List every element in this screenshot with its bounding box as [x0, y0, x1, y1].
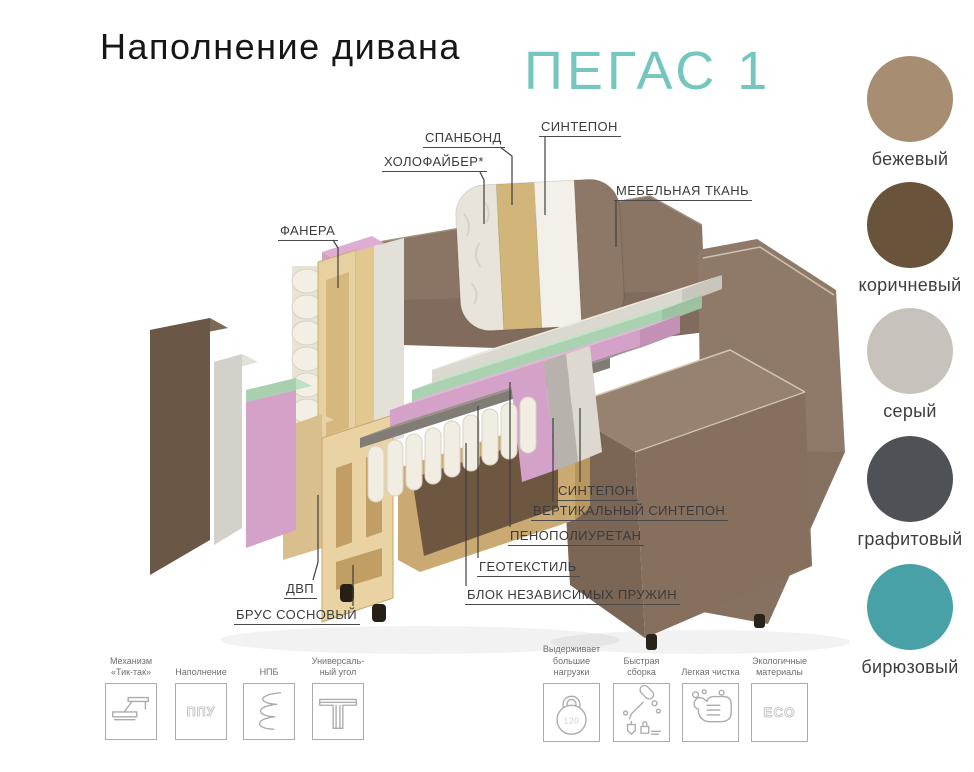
feature-box — [243, 683, 295, 740]
label-furniture-fabric: МЕБЕЛЬНАЯ ТКАНЬ — [614, 184, 752, 201]
easy-cleaning-icon — [683, 684, 738, 741]
quick-assembly-icon — [614, 684, 669, 741]
swatch-circle-graphite — [867, 436, 953, 522]
feature-box: ППУ — [175, 683, 227, 740]
spring-icon — [244, 684, 294, 739]
feature-box: ECO — [751, 683, 808, 742]
feature-quick-assembly: Быстрая сборка — [613, 683, 670, 742]
swatch-circle-turquoise — [867, 564, 953, 650]
pillow-sintepon-layer — [534, 180, 582, 328]
feature-box — [682, 683, 739, 742]
back-cushion-pillow — [454, 178, 625, 332]
fabric-swatch-beige: бежевый — [851, 56, 969, 170]
label-geotextile: ГЕОТЕКСТИЛЬ — [477, 560, 580, 577]
feature-caption: Универсаль- ный угол — [292, 656, 384, 679]
universal-corner-icon — [313, 684, 363, 739]
feature-eco-materials: Экологичные материалы ECO — [751, 683, 808, 742]
label-polyurethane: ПЕНОПОЛИУРЕТАН — [508, 529, 644, 546]
swatch-circle-beige — [867, 56, 953, 142]
eco-icon: ECO — [752, 684, 807, 741]
swatch-name: коричневый — [851, 275, 969, 296]
kettlebell-icon: 120 — [544, 684, 599, 741]
svg-text:ECO: ECO — [763, 705, 795, 720]
tik-tak-mechanism-icon — [106, 684, 156, 739]
label-sintepon-bottom: СИНТЕПОН — [556, 484, 638, 501]
ppu-filling-icon: ППУ — [176, 684, 226, 739]
feature-universal-corner: Универсаль- ный угол — [312, 683, 364, 740]
swatch-name: бежевый — [851, 149, 969, 170]
label-spunbond: СПАНБОНД — [423, 131, 505, 148]
swatch-name: бирюзовый — [851, 657, 969, 678]
label-vertical-sintepon: ВЕРТИКАЛЬНЫЙ СИНТЕПОН — [531, 504, 728, 521]
armrest-pink-foam-slab — [246, 390, 296, 548]
label-plywood: ФАНЕРА — [278, 224, 338, 241]
feature-npb: НПБ — [243, 683, 295, 740]
swatch-name: серый — [851, 401, 969, 422]
swatch-circle-brown — [867, 182, 953, 268]
fabric-swatch-graphite: графитовый — [851, 436, 969, 550]
swatch-circle-gray — [867, 308, 953, 394]
feature-box — [312, 683, 364, 740]
feature-filling-ppu: Наполнение ППУ — [175, 683, 227, 740]
feature-box — [613, 683, 670, 742]
label-spring-block: БЛОК НЕЗАВИСИМЫХ ПРУЖИН — [465, 588, 680, 605]
feature-box — [105, 683, 157, 740]
feature-easy-cleaning: Легкая чистка — [682, 683, 739, 742]
swatch-name: графитовый — [851, 529, 969, 550]
fabric-swatch-brown: коричневый — [851, 182, 969, 296]
label-holofiber: ХОЛОФАЙБЕР* — [382, 155, 487, 172]
svg-text:ППУ: ППУ — [187, 705, 216, 719]
feature-caption: Экологичные материалы — [734, 656, 826, 679]
feature-box: 120 — [543, 683, 600, 742]
feature-tik-tak-mechanism: Механизм «Тик-так» — [105, 683, 157, 740]
fabric-swatch-gray: серый — [851, 308, 969, 422]
label-sintepon-top: СИНТЕПОН — [539, 120, 621, 137]
label-pine-timber: БРУС СОСНОВЫЙ — [234, 608, 360, 625]
fabric-swatch-turquoise: бирюзовый — [851, 564, 969, 678]
label-fiberboard: ДВП — [284, 582, 317, 599]
feature-heavy-load: Выдерживает большие нагрузки 120 — [543, 683, 600, 742]
svg-text:120: 120 — [564, 716, 580, 726]
